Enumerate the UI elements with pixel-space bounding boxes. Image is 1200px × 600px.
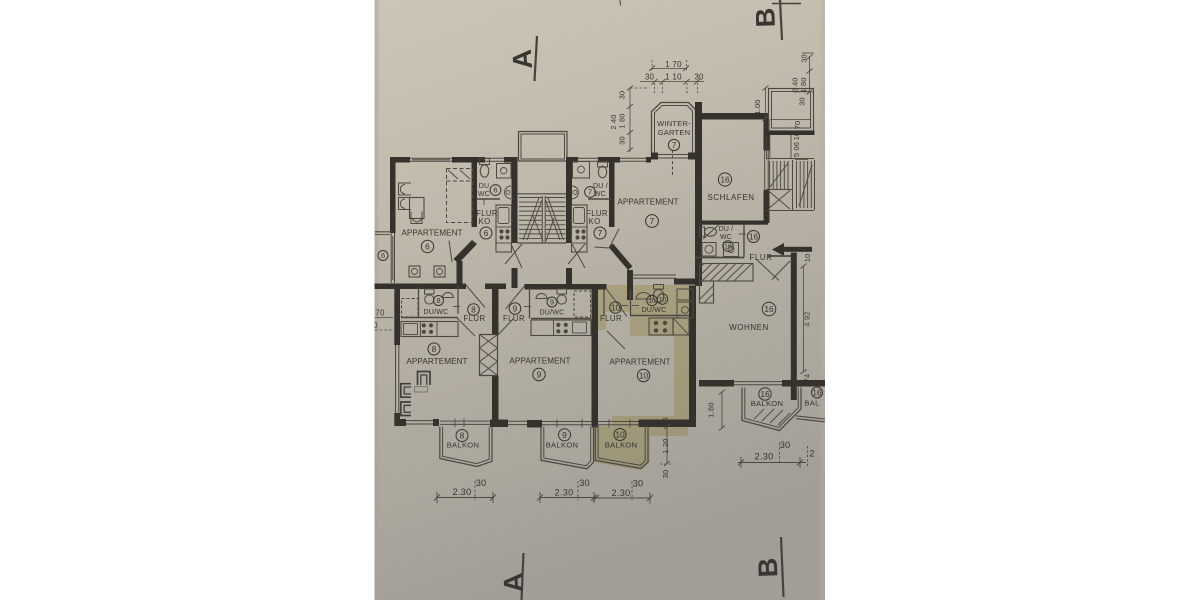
svg-text:2: 2 [809,449,814,459]
svg-text:FLUR: FLUR [600,314,622,323]
svg-text:16: 16 [720,175,730,185]
svg-text:10: 10 [792,132,801,141]
svg-text:BAL: BAL [804,399,819,408]
svg-text:1 10: 1 10 [665,73,682,82]
svg-text:10: 10 [615,430,625,440]
svg-text:A: A [507,48,538,70]
svg-text:70: 70 [793,121,802,130]
svg-text:10: 10 [648,298,656,305]
svg-text:1.80: 1.80 [707,402,716,417]
svg-text:2.30: 2.30 [554,488,573,498]
svg-text:WC: WC [478,191,490,198]
svg-text:30: 30 [780,440,791,450]
svg-text:1 20: 1 20 [661,439,670,454]
svg-text:DU /: DU / [593,183,608,190]
svg-text:APPARTEMENT: APPARTEMENT [609,358,670,367]
svg-text:74: 74 [803,374,812,383]
svg-text:DU/WC: DU/WC [423,308,448,316]
svg-text:DU/WC: DU/WC [641,306,666,314]
svg-text:8: 8 [460,431,465,441]
svg-text:1 80: 1 80 [799,77,808,92]
svg-text:30: 30 [618,91,627,100]
svg-text:7: 7 [650,216,655,226]
svg-text:24: 24 [661,417,670,426]
svg-text:10: 10 [611,303,621,313]
svg-text:10: 10 [803,254,812,263]
svg-text:30: 30 [633,479,644,489]
svg-text:9: 9 [537,370,542,380]
svg-text:A: A [498,572,529,594]
svg-text:WOHNEN: WOHNEN [729,323,769,332]
svg-text:2.30: 2.30 [754,452,773,462]
svg-text:6: 6 [425,242,430,252]
svg-text:16: 16 [812,388,822,398]
svg-text:16: 16 [764,304,774,314]
svg-text:KO: KO [589,217,601,226]
svg-text:GARTEN: GARTEN [658,128,691,137]
svg-text:BALKON: BALKON [605,441,638,450]
svg-text:B: B [750,7,781,28]
svg-text:B: B [753,557,784,578]
svg-text:10: 10 [639,371,649,381]
svg-text:WINTER-: WINTER- [657,119,691,128]
svg-text:DU/WC: DU/WC [539,308,564,316]
svg-text:1.00: 1.00 [753,99,762,114]
svg-text:6: 6 [381,251,385,260]
svg-text:BALKON: BALKON [447,441,480,450]
svg-text:KO: KO [479,217,491,226]
svg-text:BALKON: BALKON [751,399,784,408]
svg-text:SCHLAFEN: SCHLAFEN [707,193,754,202]
svg-text:BALKON: BALKON [546,441,579,450]
svg-text:DU: DU [479,183,490,190]
svg-text:9: 9 [513,304,518,314]
svg-text:WC: WC [720,234,732,241]
svg-text:1 70: 1 70 [665,60,682,69]
svg-text:8: 8 [432,344,437,354]
svg-text:FLUR: FLUR [749,253,772,262]
svg-text:7: 7 [598,228,603,238]
svg-text:30: 30 [618,136,627,145]
svg-text:30: 30 [645,73,655,82]
svg-text:30: 30 [476,478,487,488]
svg-text:10: 10 [659,296,667,303]
svg-text:2.30: 2.30 [452,487,471,497]
svg-text:7: 7 [588,188,592,197]
svg-text:16: 16 [760,389,770,399]
svg-text:9: 9 [562,430,567,440]
svg-text:APPARTEMENT: APPARTEMENT [509,357,570,366]
svg-text:16: 16 [749,232,759,242]
svg-text:APPARTEMENT: APPARTEMENT [406,357,467,366]
svg-text:5 06: 5 06 [792,142,801,157]
svg-text:6: 6 [484,228,489,238]
svg-text:FLUR: FLUR [464,314,486,323]
svg-text:30: 30 [798,97,807,106]
svg-text:1 80: 1 80 [618,113,627,128]
svg-text:APPARTEMENT: APPARTEMENT [617,198,678,207]
svg-text:16: 16 [724,244,732,251]
svg-text:6: 6 [493,186,497,195]
svg-text:8: 8 [436,296,440,305]
svg-text:9: 9 [550,298,554,307]
svg-text:APPARTEMENT: APPARTEMENT [401,229,462,238]
svg-text:7: 7 [672,141,676,150]
svg-text:DU /: DU / [719,226,734,233]
svg-text:30: 30 [579,478,590,488]
svg-text:2.30: 2.30 [611,488,630,498]
svg-text:70: 70 [375,309,385,318]
svg-text:30: 30 [661,470,670,479]
svg-text:2 40: 2 40 [791,77,800,92]
